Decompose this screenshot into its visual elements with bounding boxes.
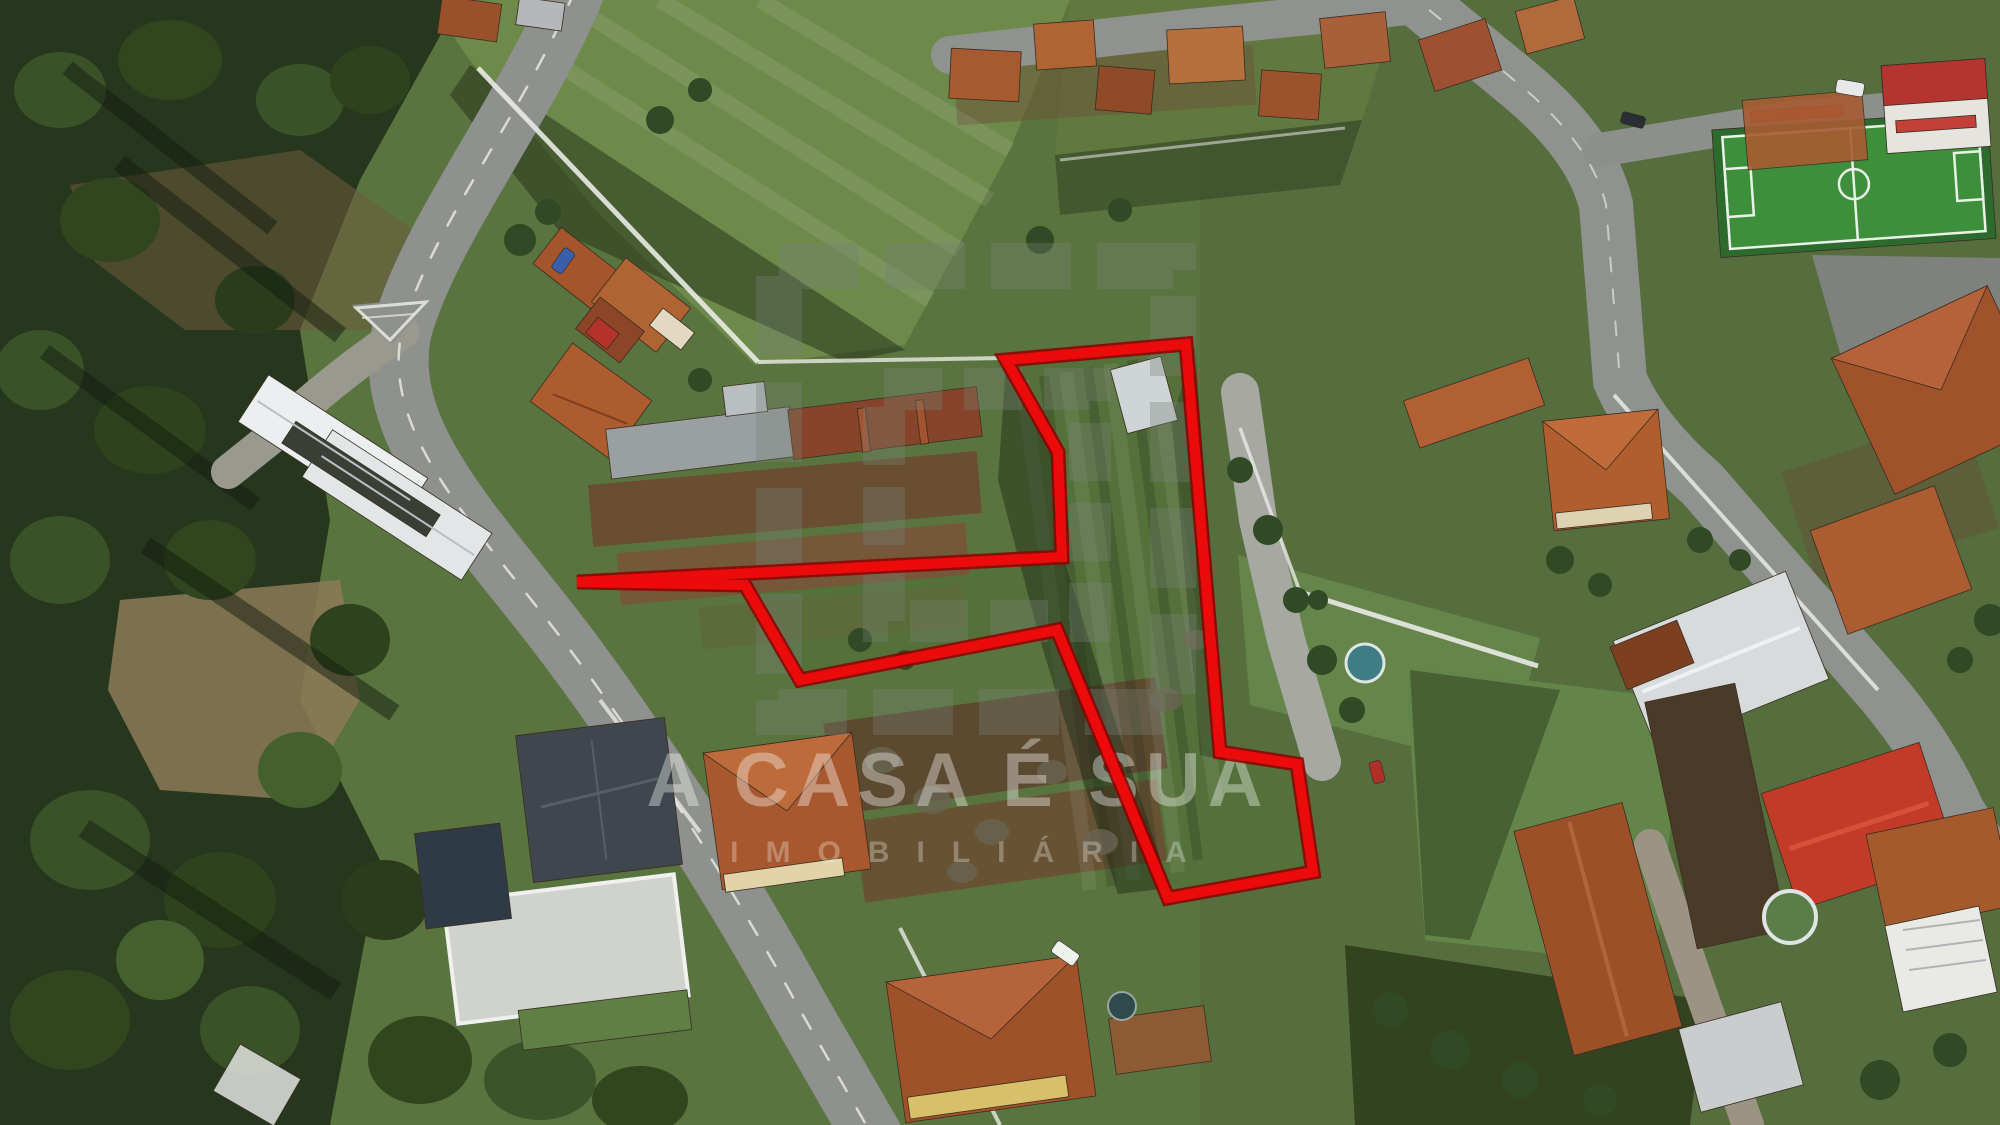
watermark-title: A CASA É SUA (646, 738, 1269, 823)
aerial-photo-canvas: A CASA É SUA IMOBILIÁRIA (0, 0, 2000, 1125)
clubhouse (1881, 58, 1991, 153)
small-round-tank (1108, 992, 1136, 1020)
aerial-photo: A CASA É SUA IMOBILIÁRIA (0, 0, 2000, 1125)
round-pool-green (1764, 891, 1816, 943)
round-pool-blue (1346, 644, 1384, 682)
